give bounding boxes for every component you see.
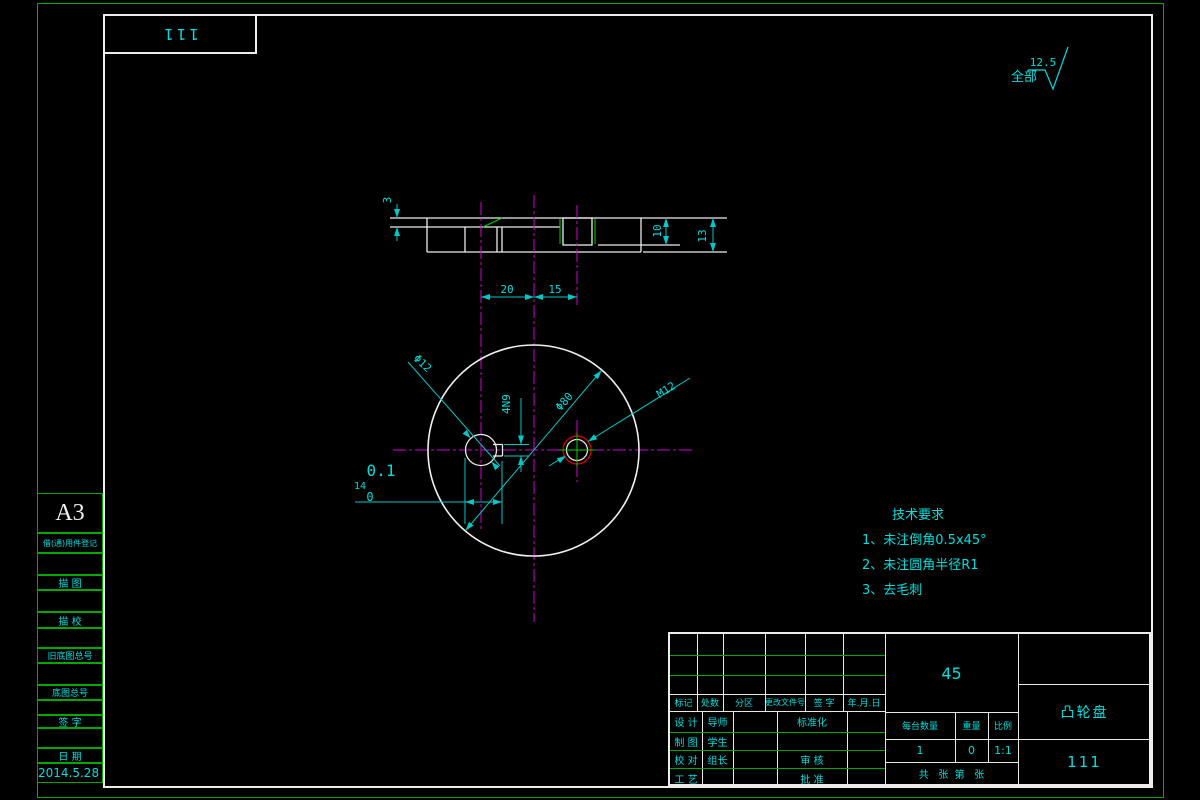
role-process: 工 艺 — [670, 768, 702, 788]
role-draft: 制 图 — [670, 732, 702, 750]
role-draft-person: 学生 — [702, 732, 733, 750]
rev-col-mark: 标记 — [670, 694, 697, 711]
role-review: 审 核 — [777, 750, 847, 768]
role-standardize: 标准化 — [777, 711, 847, 732]
sidebar-column: A3 借(通)用件登记 描 图 描 校 旧底图总号 底图总号 签 字 日 期 2… — [37, 493, 103, 783]
top-drawing-number-box: 111 — [103, 14, 257, 54]
qty-value: 1 — [885, 739, 955, 762]
role-check: 校 对 — [670, 750, 702, 768]
part-name: 凸轮盘 — [1018, 684, 1151, 739]
sidebar-row-date-label: 日 期 — [37, 748, 103, 763]
top-drawing-number: 111 — [161, 25, 199, 43]
sheet-count-note: 共 张 第 张 — [885, 762, 1018, 784]
scale-label: 比例 — [988, 712, 1018, 739]
role-design-person: 导师 — [702, 711, 733, 732]
tech-req-item: 1、未注倒角0.5x45° — [862, 528, 1082, 553]
role-check-person: 组长 — [702, 750, 733, 768]
sidebar-row-empty — [37, 663, 103, 685]
title-block: 标记 处数 分区 更改文件号 签 字 年.月.日 设 计 导师 制 图 学生 校… — [668, 632, 1151, 786]
tech-req-item: 2、未注圆角半径R1 — [862, 553, 1082, 578]
material-cell: 45 — [885, 634, 1018, 712]
rev-col-count: 处数 — [697, 694, 723, 711]
weight-label: 重量 — [955, 712, 988, 739]
sidebar-date-value: 2014.5.28 — [37, 763, 103, 783]
role-design: 设 计 — [670, 711, 702, 732]
sidebar-row-check: 描 校 — [37, 612, 103, 628]
drawing-number: 111 — [1018, 739, 1151, 784]
sidebar-row-borrow: 借(通)用件登记 — [37, 533, 103, 553]
role-approve: 批 准 — [777, 768, 847, 788]
tech-req-item: 3、去毛刺 — [862, 578, 1082, 603]
paper-size-label: A3 — [37, 493, 103, 533]
rev-col-sign: 签 字 — [805, 694, 843, 711]
sidebar-row-empty — [37, 590, 103, 612]
qty-label: 每台数量 — [885, 712, 955, 739]
scale-value: 1:1 — [988, 739, 1018, 762]
sidebar-row-empty — [37, 728, 103, 748]
rev-col-file-no: 更改文件号 — [765, 694, 805, 711]
cad-drawing-sheet: { "sheet": { "format": "A3", "top_box_te… — [0, 0, 1200, 800]
sidebar-row-empty — [37, 553, 103, 575]
sidebar-row-trace: 描 图 — [37, 575, 103, 590]
technical-requirements: 技术要求 1、未注倒角0.5x45° 2、未注圆角半径R1 3、去毛刺 — [862, 503, 1082, 603]
weight-value: 0 — [955, 739, 988, 762]
rev-col-zone: 分区 — [723, 694, 765, 711]
sidebar-row-empty — [37, 628, 103, 648]
sidebar-row-base-no: 底图总号 — [37, 685, 103, 700]
rev-col-date: 年.月.日 — [843, 694, 885, 711]
sidebar-row-empty — [37, 700, 103, 715]
tech-req-title: 技术要求 — [862, 503, 1082, 528]
sidebar-row-old-no: 旧底图总号 — [37, 648, 103, 663]
sidebar-row-sign: 签 字 — [37, 715, 103, 728]
